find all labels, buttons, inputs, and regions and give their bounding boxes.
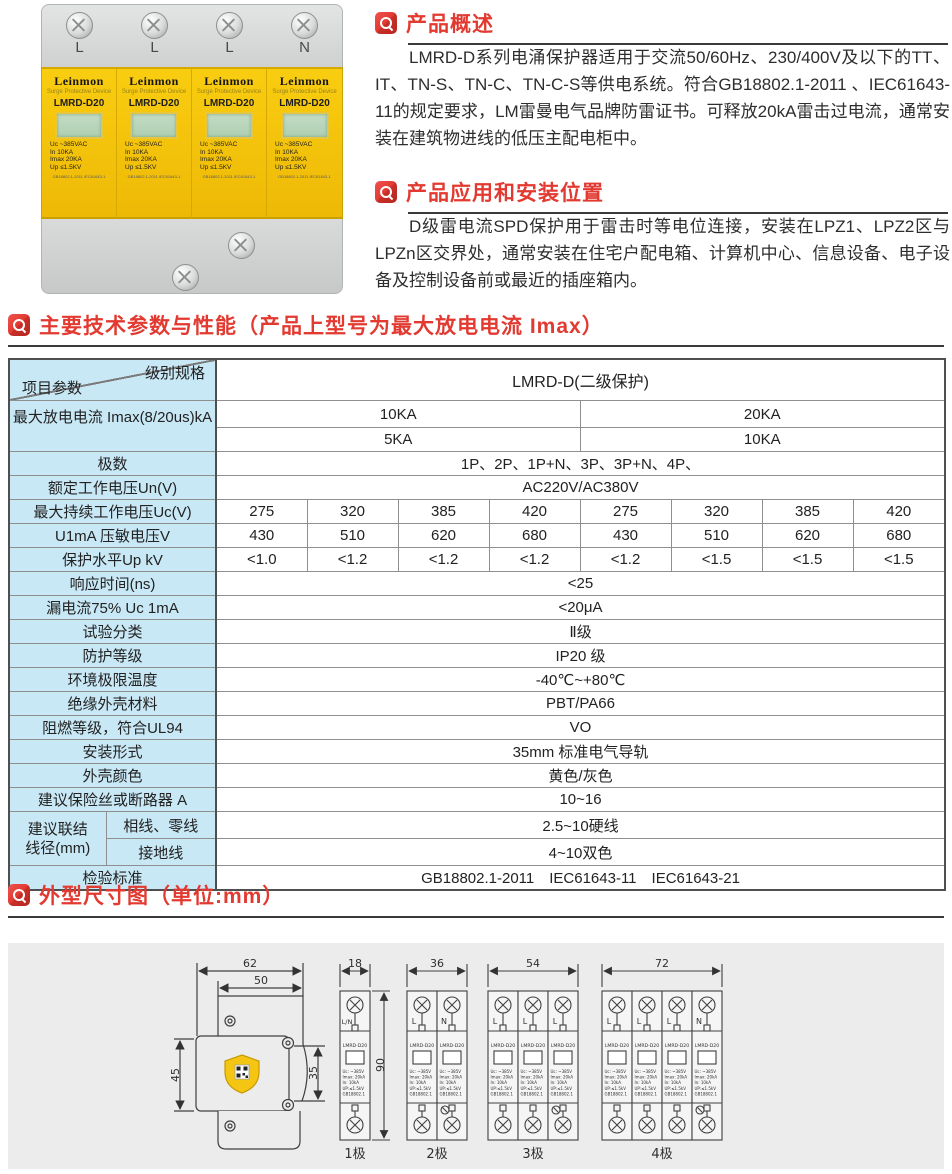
cell: 680 [853,524,945,548]
module-specs: Uc ~385VAC In 10KA Imax 20KA Up ≤1.5KV [120,141,188,171]
spec-line: In: 10kA [410,1080,427,1085]
spec-line: Uc: ~385V [491,1069,513,1074]
terminal-letter: L [553,1017,558,1026]
cell: <1.2 [489,548,580,572]
row-label: 漏电流75% Uc 1mA [9,596,216,620]
module-model: LMRD-D20 [270,98,339,109]
cell: <1.0 [216,548,307,572]
row-label: U1mA 压敏电压V [9,524,216,548]
spec-line: GB18802.1 [605,1091,628,1096]
module-row: Leinmon Surge Protective Device LMRD-D20… [41,67,343,219]
terminal-letter: L [607,1017,612,1026]
spd-module: Leinmon Surge Protective Device LMRD-D20… [192,67,267,219]
wire-label-line1: 建议联结 [28,821,88,838]
terminal-label: L [192,40,267,56]
cell: <1.5 [762,548,853,572]
pole-group-3极: 54LLMRD-D20Uc: ~385VImax: 20kAIn: 10kAUP… [488,957,578,1162]
table-row: 保护水平Up kV <1.0 <1.2 <1.2 <1.2 <1.2 <1.5 … [9,548,945,572]
spec-line: In: 10kA [343,1080,360,1085]
cell: <1.2 [398,548,489,572]
cell: AC220V/AC380V [216,476,945,500]
module-cert: GB18802.1-2011 IEC61643-1 [195,174,263,179]
row-label: 建议保险丝或断路器 A [9,788,216,812]
table-row: 建议保险丝或断路器 A 10~16 [9,788,945,812]
cell: Ⅱ级 [216,620,945,644]
table-row: 防护等级 IP20 级 [9,644,945,668]
module-cert: GB18802.1-2011 IEC61643-1 [45,174,113,179]
status-window [130,112,178,139]
cell: 10~16 [216,788,945,812]
spec-line: Imax: 20kA [521,1075,544,1080]
spec-line: In 10KA [275,149,339,157]
row-label: 保护水平Up kV [9,548,216,572]
dim-width: 54 [526,957,540,970]
cell: 620 [762,524,853,548]
pole-group-2极: 36LLMRD-D20Uc: ~385VImax: 20kAIn: 10kAUP… [407,957,467,1162]
terminal: N [267,5,342,67]
table-row: 安装形式 35mm 标准电气导轨 [9,740,945,764]
spec-line: Uc: ~385V [665,1069,687,1074]
spec-line: In: 10kA [440,1080,457,1085]
device-base [41,219,343,294]
status-window [205,112,253,139]
terminal-label: L [117,40,192,56]
dim-width: 18 [348,957,362,970]
spec-line: Imax: 20kA [440,1075,463,1080]
row-label: 极数 [9,452,216,476]
product-header-cell: LMRD-D(二级保护) [216,359,945,401]
spec-line: Uc ~385VAC [275,141,339,149]
dim-height: 90 [374,1058,387,1072]
cell: 620 [398,524,489,548]
screw-icon [66,12,93,39]
parameters-table: 级别规格 项目参数 LMRD-D(二级保护) 最大放电电流 Imax(8/20u… [8,358,946,891]
cell: GB18802.1-2011 IEC61643-11 IEC61643-21 [216,866,945,891]
pole-group-4极: 72LLMRD-D20Uc: ~385VImax: 20kAIn: 10kAUP… [602,957,722,1162]
table-row: 响应时间(ns) <25 [9,572,945,596]
row-label: 安装形式 [9,740,216,764]
terminal-letter: L [523,1017,528,1026]
module-model: LMRD-D20 [635,1043,659,1049]
spec-line: Uc: ~385V [605,1069,627,1074]
product-photo: L L L N Leinmon Surge Protective Device … [34,4,350,306]
magnifier-icon [8,884,30,906]
status-window [281,112,329,139]
terminal: L [42,5,117,67]
module-model: LMRD-D20 [695,1043,719,1049]
cell: 4~10双色 [216,839,945,866]
spec-line: GB18802.1 [491,1091,514,1096]
cell: 510 [307,524,398,548]
spec-line: UP:≤1.5kV [665,1086,687,1091]
module-model: LMRD-D20 [605,1043,629,1049]
corner-bottom-label: 项目参数 [22,377,82,398]
spec-line: Uc: ~385V [635,1069,657,1074]
spd-device: L L L N Leinmon Surge Protective Device … [41,4,343,294]
terminal: L [117,5,192,67]
spec-line: GB18802.1 [695,1091,718,1096]
overview-body: LMRD-D系列电涌保护器适用于交流50/60Hz、230/400V及以下的TT… [375,44,950,152]
spec-line: Imax: 20kA [343,1075,366,1080]
divider [8,345,944,347]
cell: -40℃~+80℃ [216,668,945,692]
spec-line: Up ≤1.5KV [50,164,113,172]
dim-height-left: 45 [169,1068,182,1082]
cell: 10KA [580,428,945,452]
spec-line: In 10KA [125,149,188,157]
section-application: 产品应用和安装位置 [375,177,948,214]
cell: 275 [580,500,671,524]
spec-line: In: 10kA [665,1080,682,1085]
spec-line: In: 10kA [551,1080,568,1085]
module-cert: GB18802.1-2011 IEC61643-1 [120,174,188,179]
module-model: LMRD-D20 [195,98,263,109]
section-title: 外型尺寸图（单位:mm） [39,880,284,910]
magnifier-icon [8,314,30,336]
cell: 275 [216,500,307,524]
magnifier-icon [375,181,397,203]
spec-line: Imax: 20kA [605,1075,628,1080]
cell: 10KA [216,401,580,428]
table-row: 建议联结 线径(mm) 相线、零线 2.5~10硬线 [9,812,945,839]
row-label: 最大持续工作电压Uc(V) [9,500,216,524]
dim-width-outer: 62 [243,957,257,970]
cell: 430 [216,524,307,548]
cell: <20μA [216,596,945,620]
section-title: 产品应用和安装位置 [406,177,604,207]
table-row: 试验分类 Ⅱ级 [9,620,945,644]
module-model: LMRD-D20 [343,1043,367,1049]
spec-line: Imax: 20kA [635,1075,658,1080]
section-title: 产品概述 [406,8,494,38]
spec-line: Up ≤1.5KV [125,164,188,172]
spec-line: Up ≤1.5KV [200,164,263,172]
row-label: 绝缘外壳材料 [9,692,216,716]
table-row: 绝缘外壳材料 PBT/PA66 [9,692,945,716]
spec-line: In 10KA [200,149,263,157]
module-model: LMRD-D20 [491,1043,515,1049]
spec-line: In: 10kA [491,1080,508,1085]
spd-module: Leinmon Surge Protective Device LMRD-D20… [42,67,117,219]
spec-line: In: 10kA [521,1080,538,1085]
spec-line: Imax: 20kA [695,1075,718,1080]
spec-line: Uc ~385VAC [125,141,188,149]
table-row: 外壳颜色 黄色/灰色 [9,764,945,788]
spec-line: UP:≤1.5kV [695,1086,717,1091]
pole-count-label: 2极 [426,1147,447,1162]
section-parameters-head: 主要技术参数与性能（产品上型号为最大放电电流 Imax） [8,310,604,340]
table-row: 额定工作电压Un(V) AC220V/AC380V [9,476,945,500]
spec-line: In: 10kA [635,1080,652,1085]
cell: 2.5~10硬线 [216,812,945,839]
table-row: 阻燃等级，符合UL94 VO [9,716,945,740]
module-cert: GB18802.1-2011 IEC61643-1 [270,174,339,179]
spec-line: Uc: ~385V [410,1069,432,1074]
row-label: 防护等级 [9,644,216,668]
terminal-strip: L L L N [41,4,343,67]
screw-icon [291,12,318,39]
spec-line: Imax: 20kA [491,1075,514,1080]
spec-line: Uc: ~385V [343,1069,365,1074]
side-view [174,963,325,1149]
pole-groups: 18L/NLMRD-D20Uc: ~385VImax: 20kAIn: 10kA… [340,957,722,1162]
status-window [55,112,103,139]
module-subtitle: Surge Protective Device [120,89,188,96]
cell: 385 [762,500,853,524]
cell: IP20 级 [216,644,945,668]
cell: VO [216,716,945,740]
spec-line: Imax: 20kA [410,1075,433,1080]
dim-height-right: 35 [307,1066,320,1080]
section-title: 主要技术参数与性能（产品上型号为最大放电电流 Imax） [39,310,604,340]
table-row: U1mA 压敏电压V 430 510 620 680 430 510 620 6… [9,524,945,548]
spec-line: Up ≤1.5KV [275,164,339,172]
terminal-letter: L [667,1017,672,1026]
spec-line: Uc ~385VAC [50,141,113,149]
dim-width: 36 [430,957,444,970]
spec-line: Imax 20KA [50,156,113,164]
spec-line: Uc ~385VAC [200,141,263,149]
module-model: LMRD-D20 [440,1043,464,1049]
row-label: 试验分类 [9,620,216,644]
table-row: 最大放电电流 Imax(8/20us)kA 10KA 20KA [9,401,945,428]
corner-top-label: 级别规格 [145,362,205,383]
cell: 5KA [216,428,580,452]
row-label: 外壳颜色 [9,764,216,788]
spd-module: Leinmon Surge Protective Device LMRD-D20… [267,67,342,219]
cell: <1.2 [307,548,398,572]
cell: 420 [489,500,580,524]
pole-group-1极: 18L/NLMRD-D20Uc: ~385VImax: 20kAIn: 10kA… [340,957,390,1162]
spec-line: Imax 20KA [200,156,263,164]
row-label: 阻燃等级，符合UL94 [9,716,216,740]
row-label: 额定工作电压Un(V) [9,476,216,500]
divider [8,916,944,918]
spec-line: GB18802.1 [551,1091,574,1096]
ground-screw-icon [228,232,255,259]
spec-line: Imax 20KA [125,156,188,164]
cell: <1.2 [580,548,671,572]
spec-line: Imax 20KA [275,156,339,164]
pole-count-label: 3极 [522,1147,543,1162]
dim-width: 72 [655,957,669,970]
module-specs: Uc ~385VAC In 10KA Imax 20KA Up ≤1.5KV [195,141,263,171]
spec-line: UP:≤1.5kV [635,1086,657,1091]
row-label: 环境极限温度 [9,668,216,692]
spec-line: GB18802.1 [343,1091,366,1096]
application-body: D级雷电流SPD保护用于雷击时等电位连接，安装在LPZ1、LPZ2区与LPZn区… [375,213,950,294]
row-sublabel: 相线、零线 [106,812,216,839]
pole-count-label: 1极 [344,1147,365,1162]
row-label: 建议联结 线径(mm) [9,812,106,866]
section-overview: 产品概述 [375,8,948,45]
spec-line: In: 10kA [605,1080,622,1085]
brand-text: Leinmon [270,74,339,89]
table-row: 接地线 4~10双色 [9,839,945,866]
row-label: 响应时间(ns) [9,572,216,596]
cell: 20KA [580,401,945,428]
module-subtitle: Surge Protective Device [270,89,339,96]
table-row: 极数 1P、2P、1P+N、3P、3P+N、4P、 [9,452,945,476]
cell: 1P、2P、1P+N、3P、3P+N、4P、 [216,452,945,476]
cell: 420 [853,500,945,524]
spec-line: GB18802.1 [635,1091,658,1096]
terminal-letter: N [441,1017,447,1026]
terminal-letter: L/N [342,1018,353,1026]
screw-icon [141,12,168,39]
spec-line: In: 10kA [695,1080,712,1085]
module-model: LMRD-D20 [120,98,188,109]
row-sublabel: 接地线 [106,839,216,866]
module-model: LMRD-D20 [410,1043,434,1049]
section-dimensions-head: 外型尺寸图（单位:mm） [8,880,284,910]
cell: 385 [398,500,489,524]
spec-line: UP:≤1.5kV [605,1086,627,1091]
module-subtitle: Surge Protective Device [45,89,113,96]
terminal-letter: N [696,1017,702,1026]
spec-line: UP:≤1.5kV [440,1086,462,1091]
module-subtitle: Surge Protective Device [195,89,263,96]
terminal-letter: L [412,1017,417,1026]
spec-line: Uc: ~385V [551,1069,573,1074]
spec-line: GB18802.1 [440,1091,463,1096]
spec-line: Imax: 20kA [551,1075,574,1080]
terminal: L [192,5,267,67]
brand-text: Leinmon [45,74,113,89]
table-row: 最大持续工作电压Uc(V) 275 320 385 420 275 320 38… [9,500,945,524]
row-label: 最大放电电流 Imax(8/20us)kA [9,401,216,452]
module-model: LMRD-D20 [521,1043,545,1049]
spec-line: Imax: 20kA [665,1075,688,1080]
spec-line: GB18802.1 [665,1091,688,1096]
spec-line: GB18802.1 [521,1091,544,1096]
spec-line: UP:≤1.5kV [410,1086,432,1091]
screw-icon [216,12,243,39]
spec-line: Uc: ~385V [440,1069,462,1074]
spec-line: GB18802.1 [410,1091,433,1096]
magnifier-icon [375,12,397,34]
cell: <1.5 [853,548,945,572]
cell: 680 [489,524,580,548]
spec-line: UP:≤1.5kV [491,1086,513,1091]
module-specs: Uc ~385VAC In 10KA Imax 20KA Up ≤1.5KV [45,141,113,171]
dim-width-inner: 50 [254,974,268,987]
spec-line: Uc: ~385V [521,1069,543,1074]
cell: <1.5 [671,548,762,572]
table-row: 漏电流75% Uc 1mA <20μA [9,596,945,620]
module-model: LMRD-D20 [45,98,113,109]
cell: 黄色/灰色 [216,764,945,788]
cell: 320 [307,500,398,524]
cell: PBT/PA66 [216,692,945,716]
spd-module: Leinmon Surge Protective Device LMRD-D20… [117,67,192,219]
module-model: LMRD-D20 [551,1043,575,1049]
cell: 35mm 标准电气导轨 [216,740,945,764]
brand-text: Leinmon [120,74,188,89]
terminal-label: L [42,40,117,56]
module-specs: Uc ~385VAC In 10KA Imax 20KA Up ≤1.5KV [270,141,339,171]
dimension-panel: 62 50 45 35 18L/NLMRD-D20Uc: ~385VImax: … [8,943,944,1169]
spec-line: In 10KA [50,149,113,157]
spec-line: UP:≤1.5kV [521,1086,543,1091]
terminal-letter: L [637,1017,642,1026]
table-row: 环境极限温度 -40℃~+80℃ [9,668,945,692]
wire-label-line2: 线径(mm) [25,840,90,857]
terminal-letter: L [493,1017,498,1026]
module-model: LMRD-D20 [665,1043,689,1049]
corner-cell: 级别规格 项目参数 [9,359,216,401]
screw-icon [172,264,199,291]
cell: 510 [671,524,762,548]
dimension-drawing: 62 50 45 35 18L/NLMRD-D20Uc: ~385VImax: … [8,943,944,1169]
spec-line: Uc: ~385V [695,1069,717,1074]
cell: <25 [216,572,945,596]
spec-line: UP:≤1.5kV [343,1086,365,1091]
terminal-label: N [267,40,342,56]
spec-line: UP:≤1.5kV [551,1086,573,1091]
brand-text: Leinmon [195,74,263,89]
cell: 320 [671,500,762,524]
table-header-row: 级别规格 项目参数 LMRD-D(二级保护) [9,359,945,401]
cell: 430 [580,524,671,548]
pole-count-label: 4极 [651,1147,672,1162]
